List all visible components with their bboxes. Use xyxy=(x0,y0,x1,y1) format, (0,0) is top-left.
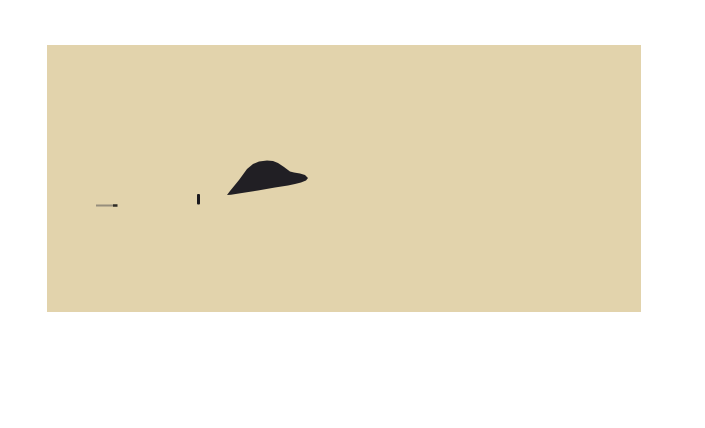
photo xyxy=(0,0,705,428)
sand-background xyxy=(47,45,641,312)
scene-svg xyxy=(0,0,705,428)
standing-figure xyxy=(197,194,200,205)
